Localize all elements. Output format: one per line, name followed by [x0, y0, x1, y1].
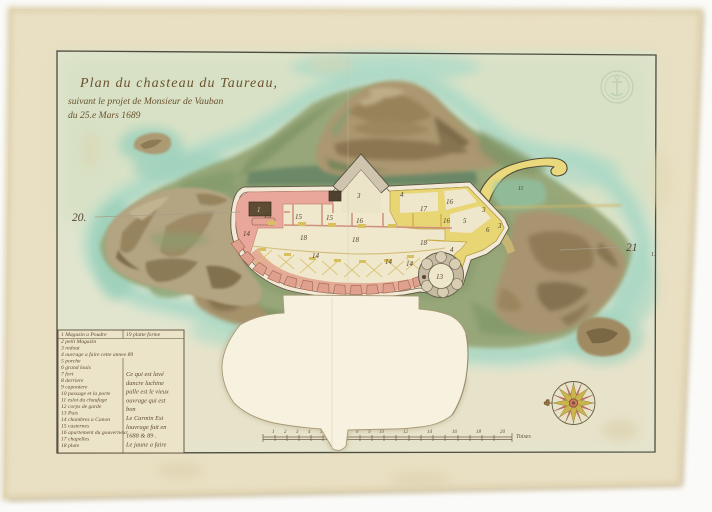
- svg-text:15: 15: [326, 214, 334, 222]
- svg-text:14: 14: [427, 430, 433, 435]
- svg-text:19 platte forme: 19 platte forme: [126, 331, 161, 338]
- svg-text:3: 3: [481, 206, 486, 214]
- svg-text:16: 16: [446, 198, 454, 206]
- svg-text:16: 16: [452, 430, 458, 435]
- svg-text:Le Carmin Est: Le Carmin Est: [125, 415, 164, 422]
- svg-text:18: 18: [420, 239, 428, 247]
- svg-text:louvrage fait en: louvrage fait en: [126, 424, 166, 431]
- svg-text:17: 17: [420, 205, 428, 213]
- svg-text:15: 15: [264, 212, 272, 220]
- svg-text:11: 11: [518, 186, 524, 192]
- svg-text:suivant le projet de Monsieur: suivant le projet de Monsieur de Vauban: [68, 96, 223, 107]
- svg-text:16 apartement du gouverneur: 16 apartement du gouverneur: [61, 430, 128, 436]
- svg-text:18: 18: [300, 234, 308, 242]
- svg-text:3 redout: 3 redout: [60, 346, 80, 352]
- svg-text:Ce qui est lavé: Ce qui est lavé: [126, 371, 165, 378]
- svg-text:13 Puis: 13 Puis: [61, 411, 78, 417]
- svg-text:15: 15: [295, 213, 303, 221]
- svg-text:14: 14: [312, 252, 320, 260]
- svg-text:16: 16: [356, 217, 364, 225]
- svg-text:15 casternes: 15 casternes: [61, 424, 89, 430]
- svg-text:20.: 20.: [72, 212, 86, 224]
- svg-text:palle est le vieux: palle est le vieux: [125, 389, 169, 396]
- svg-text:1: 1: [257, 206, 261, 214]
- svg-text:5 porche: 5 porche: [61, 359, 81, 365]
- svg-text:8 derriere: 8 derriere: [61, 378, 84, 384]
- svg-text:5: 5: [463, 217, 467, 225]
- svg-text:2 petit Magazin: 2 petit Magazin: [61, 339, 96, 345]
- svg-text:1688 & 89 .: 1688 & 89 .: [126, 433, 157, 440]
- svg-text:3: 3: [497, 222, 502, 230]
- svg-text:ouvrage qui est: ouvrage qui est: [126, 397, 166, 404]
- svg-text:3: 3: [356, 192, 361, 200]
- svg-text:dancre lachine: dancre lachine: [126, 380, 164, 387]
- svg-text:6 grand louis: 6 grand louis: [61, 365, 91, 371]
- svg-text:6: 6: [486, 226, 490, 234]
- svg-text:10 passage et la porte: 10 passage et la porte: [61, 391, 111, 397]
- svg-text:21: 21: [626, 242, 638, 254]
- svg-text:Toises: Toises: [516, 434, 531, 440]
- svg-text:14: 14: [243, 230, 251, 238]
- svg-text:18: 18: [352, 236, 360, 244]
- svg-text:Plan du chasteau du Taureau,: Plan du chasteau du Taureau,: [79, 76, 278, 91]
- svg-text:17 chapelles: 17 chapelles: [61, 437, 89, 443]
- svg-text:20: 20: [500, 430, 506, 435]
- svg-text:12: 12: [403, 430, 409, 435]
- svg-text:14: 14: [406, 260, 414, 268]
- svg-text:4: 4: [450, 246, 454, 254]
- svg-text:18 plate: 18 plate: [61, 443, 80, 449]
- svg-text:1.: 1.: [651, 252, 656, 258]
- svg-text:14 chambres a Canon: 14 chambres a Canon: [61, 417, 110, 423]
- svg-text:18: 18: [476, 430, 482, 435]
- svg-text:Le jaune a faire: Le jaune a faire: [125, 441, 167, 448]
- svg-text:11 eslot du chaufage: 11 eslot du chaufage: [61, 397, 108, 404]
- svg-text:16: 16: [443, 217, 451, 225]
- svg-text:du 25.e Mars 1689: du 25.e Mars 1689: [68, 110, 141, 121]
- svg-text:bon: bon: [126, 406, 136, 413]
- svg-text:4 ouvrage a faire cette annee: 4 ouvrage a faire cette annee 89: [61, 351, 133, 358]
- svg-text:7 fort: 7 fort: [61, 371, 74, 378]
- svg-text:14: 14: [385, 258, 393, 266]
- svg-text:4: 4: [400, 191, 404, 199]
- svg-text:1: 1: [272, 430, 275, 435]
- svg-text:13: 13: [436, 273, 444, 281]
- svg-text:9 caponiere: 9 caponiere: [61, 385, 88, 391]
- svg-text:12 corps de garde: 12 corps de garde: [61, 404, 102, 410]
- svg-text:1 Magazin a Poudre: 1 Magazin a Poudre: [61, 332, 107, 338]
